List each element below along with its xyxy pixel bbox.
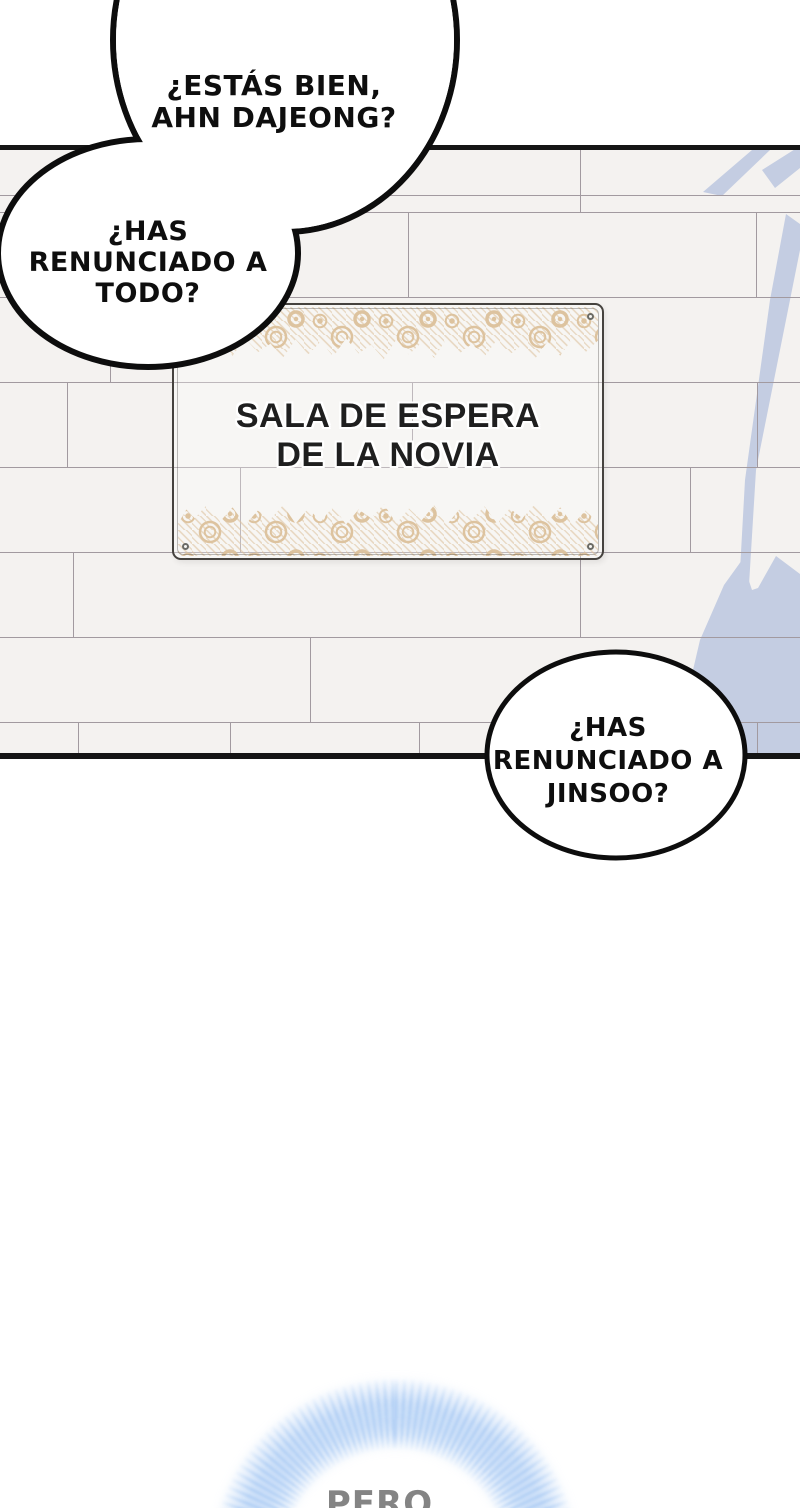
speech-bubble-3-text: ¿HAS RENUNCIADO A JINSOO? xyxy=(468,712,748,811)
bubble-3-line-1: ¿HAS xyxy=(468,712,748,745)
speech-bubble-1-text: ¿ESTÁS BIEN, AHN DAJEONG? xyxy=(124,70,424,134)
bubble-1-line-1: ¿ESTÁS BIEN, xyxy=(124,70,424,102)
bubble-2-line-3: TODO? xyxy=(8,278,288,309)
caption-pero: PERO... xyxy=(290,1484,510,1508)
bubble-3-line-2: RENUNCIADO A xyxy=(468,745,748,778)
bubble-2-line-1: ¿HAS xyxy=(8,216,288,247)
bubble-1-line-2: AHN DAJEONG? xyxy=(124,102,424,134)
bubble-3-line-3: JINSOO? xyxy=(468,778,748,811)
bubble-2-line-2: RENUNCIADO A xyxy=(8,247,288,278)
speech-bubble-2-text: ¿HAS RENUNCIADO A TODO? xyxy=(8,216,288,309)
comic-panel: SALA DE ESPERA DE LA NOVIA ¿ESTÁS BIEN, … xyxy=(0,0,800,1508)
